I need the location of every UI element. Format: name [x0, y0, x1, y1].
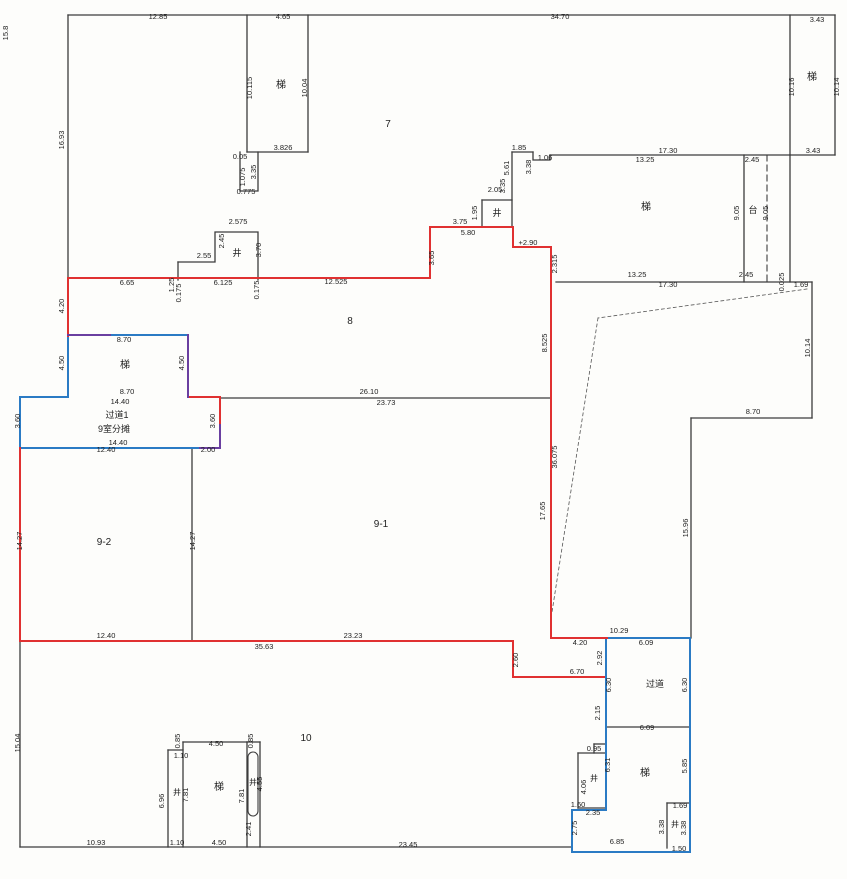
- dimension-label: 2.92: [595, 651, 604, 666]
- room-label: 梯: [214, 780, 224, 793]
- dimension-label: 2.60: [511, 653, 520, 668]
- dimension-label: 15.04: [13, 734, 22, 753]
- dimension-label: 10.14: [832, 78, 841, 97]
- dimension-label: 3.35: [249, 165, 258, 180]
- dimension-label: 13.25: [628, 270, 647, 279]
- dimension-label: 15.96: [681, 519, 690, 538]
- dimension-label: 17.30: [659, 280, 678, 289]
- dimension-label: 1.69: [794, 280, 809, 289]
- dimension-label: 10.04: [300, 79, 309, 98]
- dimension-label: 6.30: [604, 678, 613, 693]
- dimension-label: 1.10: [170, 838, 185, 847]
- dimension-label: 14.40: [111, 397, 130, 406]
- dimension-label: 2.55: [197, 251, 212, 260]
- dimension-label: 1.60: [571, 800, 586, 809]
- dimension-label: 15.8: [1, 26, 10, 41]
- room-label: 7: [385, 119, 391, 130]
- dimension-label: 17.65: [538, 502, 547, 521]
- dimension-label: 10.29: [610, 626, 629, 635]
- dimension-label: 8.70: [120, 387, 135, 396]
- dimension-label: 4.20: [57, 299, 66, 314]
- dimension-label: 4.55: [255, 777, 264, 792]
- room-label: 9-1: [374, 519, 389, 530]
- dimension-label: 1.075: [238, 168, 247, 187]
- dimension-label: 4.20: [573, 638, 588, 647]
- room-label: 井: [173, 787, 181, 797]
- dimension-label: 12.85: [149, 12, 168, 21]
- dimension-label: 6.30: [680, 678, 689, 693]
- dimension-label: 2.575: [229, 217, 248, 226]
- dimension-label: 2.35: [586, 808, 601, 817]
- dimension-label: 6.70: [570, 667, 585, 676]
- dimension-label: 2.15: [593, 706, 602, 721]
- dimension-label: +2.90: [519, 238, 538, 247]
- dimension-label: 26.10: [360, 387, 379, 396]
- dimension-label: 23.23: [344, 631, 363, 640]
- room-label: 9-2: [97, 537, 112, 548]
- room-label: 梯: [120, 358, 130, 371]
- dimension-label: 2.41: [244, 822, 253, 837]
- dimension-label: 6.31: [603, 758, 612, 773]
- dimension-label: 5.61: [502, 161, 511, 176]
- dimension-label: 3.60: [208, 414, 217, 429]
- dimension-label: 7.81: [181, 788, 190, 803]
- dimension-label: 0.95: [587, 744, 602, 753]
- dimension-label: 23.45: [399, 840, 418, 849]
- dimension-label: 17.30: [659, 146, 678, 155]
- dimension-label: 6.09: [639, 638, 654, 647]
- dimension-label: 4.06: [579, 780, 588, 795]
- dimension-label: 3.43: [806, 146, 821, 155]
- dimension-label: 6.85: [610, 837, 625, 846]
- room-label: 井: [492, 207, 501, 218]
- dimension-label: 3.38: [524, 160, 533, 175]
- dimension-label: 12.40: [97, 631, 116, 640]
- construction-line: [598, 289, 807, 318]
- dimension-label: 13.25: [636, 155, 655, 164]
- dimension-label: 4.65: [276, 12, 291, 21]
- room-label: 台: [748, 204, 757, 215]
- dimension-label: 1.06: [538, 153, 553, 162]
- dimension-label: 9.05: [761, 206, 770, 221]
- room-label: 梯: [641, 200, 651, 213]
- dimension-label: 2.45: [745, 155, 760, 164]
- dimension-label: 8.525: [540, 334, 549, 353]
- room-label: 梯: [640, 766, 650, 779]
- dimension-label: 2.75: [570, 821, 579, 836]
- room-label: 过道: [646, 678, 664, 689]
- dimension-label: 16.93: [57, 131, 66, 150]
- dimension-label: 10.16: [787, 78, 796, 97]
- dimension-label: 0.775: [237, 187, 256, 196]
- dimension-label: 3.38: [657, 820, 666, 835]
- dimension-label: 1.50: [672, 844, 687, 853]
- room-label: 井: [590, 773, 598, 783]
- dimension-label: 6.65: [120, 278, 135, 287]
- dimension-label: 6.125: [214, 278, 233, 287]
- dimension-label: 0.85: [173, 734, 182, 749]
- dimension-label: 3.75: [453, 217, 468, 226]
- room-label: 梯: [807, 70, 817, 83]
- room-label: 8: [347, 316, 353, 327]
- dimension-label: 10.93: [87, 838, 106, 847]
- room-label: 9室分摊: [98, 423, 130, 434]
- dimension-label: 10.115: [245, 77, 254, 99]
- dimension-label: 3.70: [254, 243, 263, 258]
- dimension-label: 3.60: [13, 414, 22, 429]
- dimension-label: 10.14: [803, 339, 812, 358]
- dimension-label: 35.63: [255, 642, 274, 651]
- dimension-label: 3.43: [810, 15, 825, 24]
- dimension-label: 5.80: [461, 228, 476, 237]
- room-label: 10: [300, 733, 312, 744]
- dimension-label: 0.85: [246, 734, 255, 749]
- dimension-label: 1.95: [470, 206, 479, 221]
- dimension-label: 5.85: [680, 759, 689, 774]
- dimension-label: 0.175: [252, 281, 261, 300]
- dimension-label: 8.70: [746, 407, 761, 416]
- dimension-label: 0.175: [174, 284, 183, 303]
- room-label: 过道1: [105, 409, 128, 420]
- dimension-label: 4.50: [209, 739, 224, 748]
- dimension-label: 0.025: [777, 273, 786, 292]
- dimension-label: 4.50: [57, 356, 66, 371]
- dimension-label: 1.85: [512, 143, 527, 152]
- dimension-label: 8.70: [117, 335, 132, 344]
- dimension-label: 2.00: [201, 445, 216, 454]
- dimension-label: 1.69: [673, 801, 688, 810]
- dimension-label: 3.38: [679, 821, 688, 836]
- dimension-label: 0.05: [233, 152, 248, 161]
- room-label: 井: [232, 247, 241, 258]
- room-label: 梯: [276, 78, 286, 91]
- floor-plan-document: 12.854.6534.703.4315.816.9310.115梯10.043…: [0, 0, 847, 879]
- dimension-label: 1.10: [174, 751, 189, 760]
- dimension-label: 23.73: [377, 398, 396, 407]
- dimension-label: 3.65: [427, 251, 436, 266]
- dimension-label: 12.40: [97, 445, 116, 454]
- dimension-label: 4.50: [177, 356, 186, 371]
- dimension-label: 7.81: [237, 789, 246, 804]
- dimension-label: 36.075: [550, 446, 559, 469]
- dimension-label: 2.45: [217, 234, 226, 249]
- dimension-label: 14.27: [15, 532, 24, 551]
- floor-plan-svg: 12.854.6534.703.4315.816.9310.115梯10.043…: [0, 0, 847, 879]
- dimension-label: 14.27: [188, 532, 197, 551]
- dimension-label: 34.70: [551, 12, 570, 21]
- dimension-label: 3.826: [274, 143, 293, 152]
- dimension-label: 12.525: [325, 277, 348, 286]
- dimension-label: 9.05: [732, 206, 741, 221]
- dimension-label: 6.09: [640, 723, 655, 732]
- dimension-label: 6.96: [157, 794, 166, 809]
- dimension-label: 4.50: [212, 838, 227, 847]
- dimension-label: 2.05: [488, 185, 503, 194]
- dimension-label: 2.315: [550, 255, 559, 274]
- room-label: 井: [671, 819, 679, 829]
- dimension-label: 2.45: [739, 270, 754, 279]
